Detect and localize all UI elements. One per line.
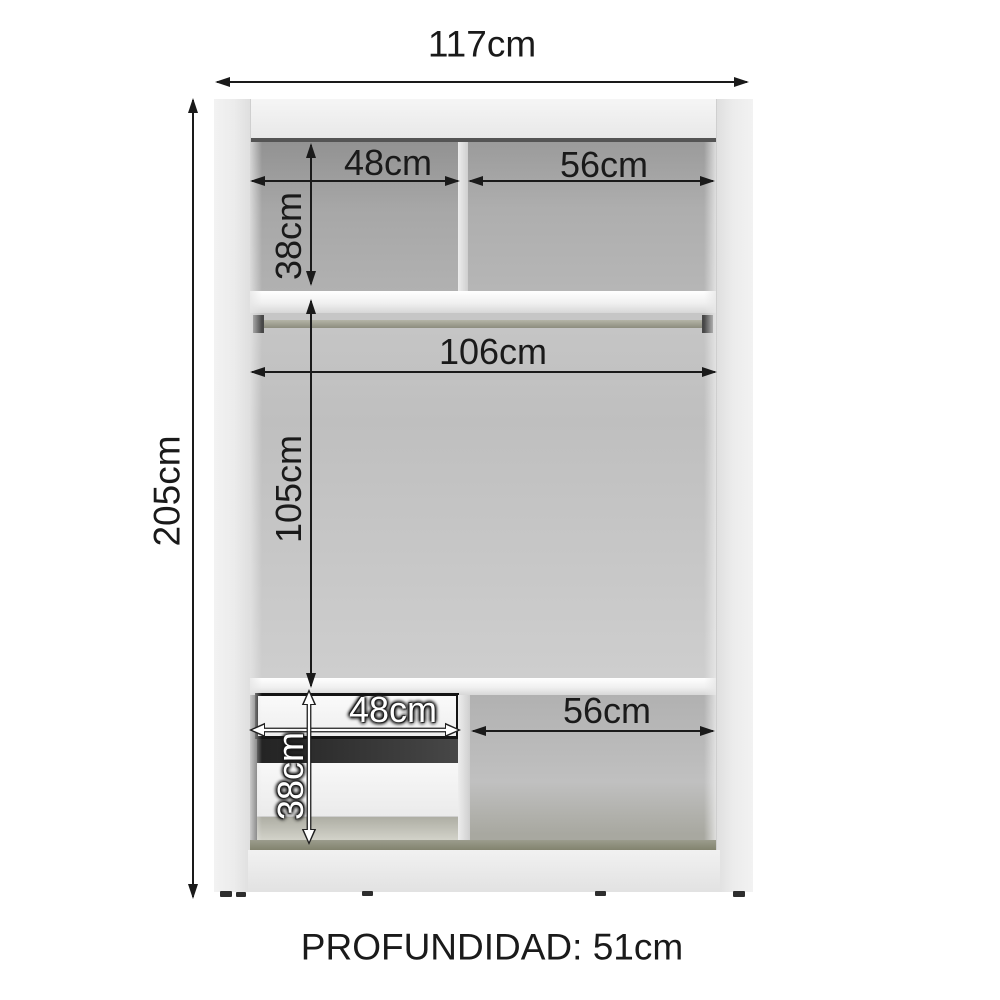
wardrobe-left-panel [214, 99, 251, 892]
drawer-height-arrow [301, 688, 317, 846]
overall-width-label: 117cm [428, 26, 536, 63]
drawer-under-shadow [257, 817, 458, 840]
top-right-shelf-width-arrow [470, 180, 713, 182]
upper-shelf [250, 291, 716, 313]
bottom-right-width-arrow [473, 730, 713, 732]
bottom-divider [458, 695, 470, 840]
top-left-shelf-width-label: 48cm [344, 145, 432, 181]
overall-height-arrow [192, 100, 194, 897]
foot [733, 891, 745, 897]
top-shelf-height-arrow [310, 145, 312, 284]
base-strip [250, 840, 716, 850]
top-shelf-height-label: 38cm [271, 192, 307, 280]
wardrobe-dimension-diagram: 117cm 205cm 48cm 56cm 38cm 106cm 105cm 4… [0, 0, 1000, 1000]
foot [595, 891, 606, 896]
main-height-label: 105cm [271, 435, 307, 543]
overall-height-label: 205cm [149, 435, 186, 546]
foot [236, 892, 246, 897]
foot [220, 891, 232, 897]
overall-width-arrow [217, 81, 747, 83]
top-right-shelf-width-label: 56cm [560, 147, 648, 183]
wardrobe-right-panel [716, 99, 753, 892]
hanging-rod [253, 320, 713, 328]
wardrobe-top-panel [214, 99, 752, 142]
kick-plate [248, 850, 720, 892]
top-shelf-divider [458, 142, 468, 291]
top-left-shelf-width-arrow [252, 180, 458, 182]
bottom-right-width-label: 56cm [563, 693, 651, 729]
rod-width-arrow [252, 371, 715, 373]
main-height-arrow [310, 301, 312, 686]
foot [362, 891, 373, 896]
rod-width-label: 106cm [439, 334, 547, 370]
depth-label: PROFUNDIDAD: 51cm [301, 929, 683, 966]
